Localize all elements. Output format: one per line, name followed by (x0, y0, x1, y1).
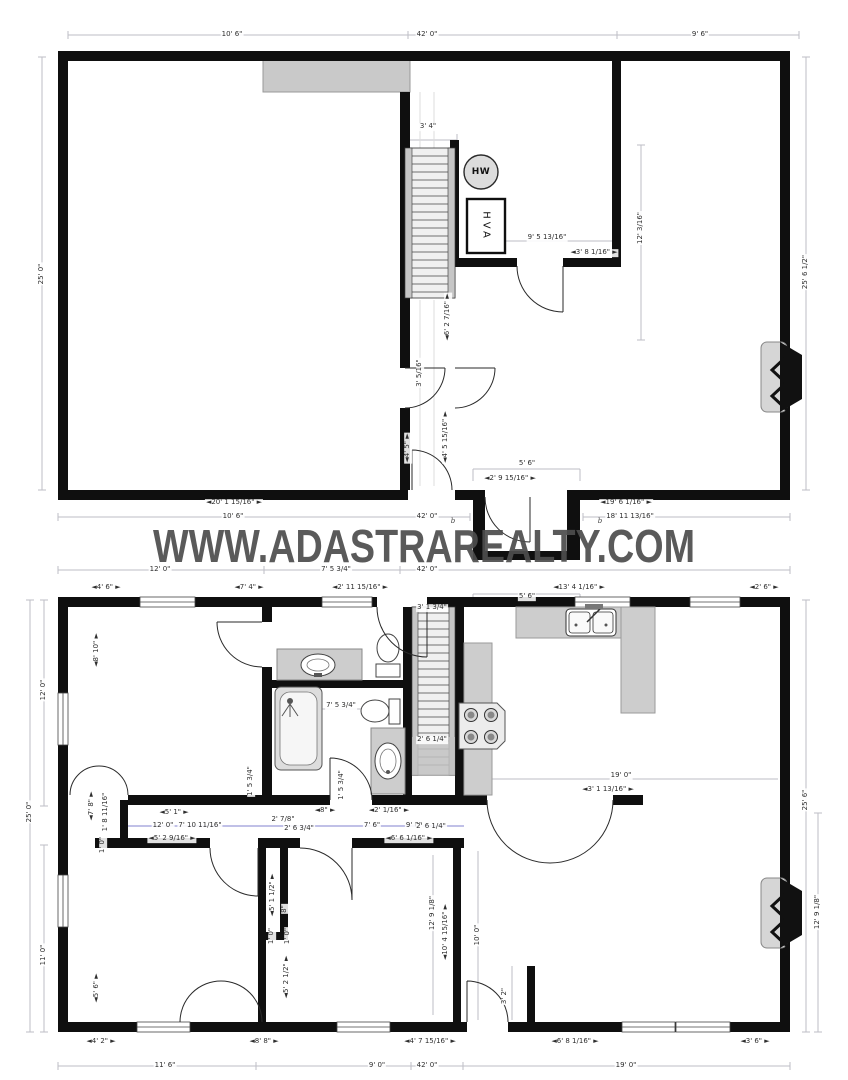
upper-walls (58, 51, 790, 560)
stove-icon (459, 703, 505, 749)
upper-bath-vanity (277, 649, 362, 680)
upper-floor-plan (38, 31, 810, 560)
watermark: WWW.ADASTRAREALTY.COM (153, 519, 695, 573)
hot-water-heater-icon (464, 155, 498, 189)
upper-stairs-icon (405, 148, 455, 298)
lower-fireplace-icon (761, 878, 802, 948)
floor-plan-page: WWW.ADASTRAREALTY.COM 10' 6"42' 0"9' 6"3… (0, 0, 848, 1080)
upper-bath-toilet-icon (376, 634, 400, 677)
kitchen-counters (464, 607, 655, 795)
lower-stairs-icon (412, 607, 455, 775)
main-floor-plan (26, 566, 822, 1070)
lower-bath-toilet-icon (361, 699, 400, 724)
bathtub-icon (275, 687, 322, 770)
kitchen-sink-icon (566, 604, 616, 636)
hvac-unit-icon (467, 199, 505, 253)
lower-bath-vanity (371, 728, 405, 794)
upper-fireplace-icon (761, 342, 802, 412)
upper-deck (263, 57, 410, 92)
